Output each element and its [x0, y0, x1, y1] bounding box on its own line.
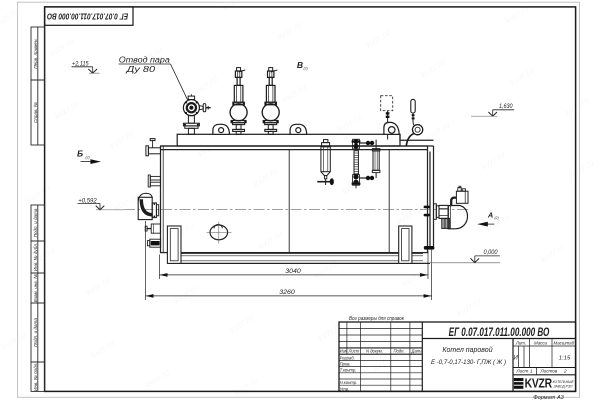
svg-text:1:15: 1:15	[559, 355, 571, 361]
svg-text:Взам. инв. №: Взам. инв. №	[33, 274, 38, 302]
svg-text:3040: 3040	[285, 268, 301, 275]
svg-text:1: 1	[530, 369, 533, 374]
svg-text:1,630: 1,630	[499, 103, 513, 110]
svg-text:Изм Лист: Изм Лист	[340, 349, 360, 354]
svg-text:Перв. примен.: Перв. примен.	[33, 38, 38, 69]
svg-text:KVZR: KVZR	[525, 377, 553, 391]
svg-text:Разраб.: Разраб.	[340, 355, 355, 360]
svg-text:Лист: Лист	[516, 369, 529, 374]
svg-text:Подп. и дата: Подп. и дата	[33, 208, 38, 237]
svg-text:И: И	[514, 356, 519, 362]
svg-text:КОТЕЛЬНЫЙ: КОТЕЛЬНЫЙ	[553, 380, 574, 384]
svg-text:Котел паровой: Котел паровой	[442, 346, 492, 354]
svg-text:ЗАВОД РЭП: ЗАВОД РЭП	[554, 384, 574, 388]
svg-text:Масштаб: Масштаб	[554, 340, 575, 345]
svg-text:3260: 3260	[279, 289, 295, 296]
svg-text:(2): (2)	[86, 156, 90, 160]
svg-text:А: А	[487, 211, 493, 220]
svg-text:Подп. и дата: Подп. и дата	[33, 318, 38, 347]
svg-text:В: В	[297, 60, 303, 70]
svg-text:Масса: Масса	[534, 340, 548, 345]
svg-text:Справ. №: Справ. №	[33, 102, 38, 123]
svg-text:Инв. № подл.: Инв. № подл.	[33, 362, 38, 391]
svg-text:ЕГ 0.07.017.011.00.000 ВО: ЕГ 0.07.017.011.00.000 ВО	[449, 327, 550, 340]
svg-text:Листов: Листов	[540, 369, 558, 374]
svg-text:Подп.: Подп.	[394, 349, 405, 354]
svg-text:Пров.: Пров.	[340, 362, 351, 367]
svg-text:(2): (2)	[304, 67, 308, 71]
svg-text:(2): (2)	[495, 216, 499, 220]
svg-text:Лит.: Лит.	[515, 340, 526, 345]
svg-text:0,000: 0,000	[484, 249, 499, 256]
svg-text:Дата: Дата	[411, 349, 424, 354]
svg-text:Инв. № дубл.: Инв. № дубл.	[33, 243, 38, 271]
svg-text:ЕГ 0.07.017.011.00.000 ВО: ЕГ 0.07.017.011.00.000 ВО	[47, 11, 128, 20]
svg-text:Ду 80: Ду 80	[125, 64, 155, 74]
svg-text:Утв.: Утв.	[340, 386, 350, 391]
svg-text:Т.контр.: Т.контр.	[340, 368, 357, 373]
svg-text:Б: Б	[77, 149, 83, 159]
svg-text:Н.контр.: Н.контр.	[340, 380, 358, 385]
svg-text:Е -0,7-0,17-130- Г,ПЖ ( Ж ): Е -0,7-0,17-130- Г,ПЖ ( Ж )	[431, 359, 506, 366]
svg-text:N докум.: N докум.	[366, 349, 383, 354]
svg-text:2: 2	[563, 369, 567, 374]
svg-text:Формат А3: Формат А3	[533, 395, 564, 400]
